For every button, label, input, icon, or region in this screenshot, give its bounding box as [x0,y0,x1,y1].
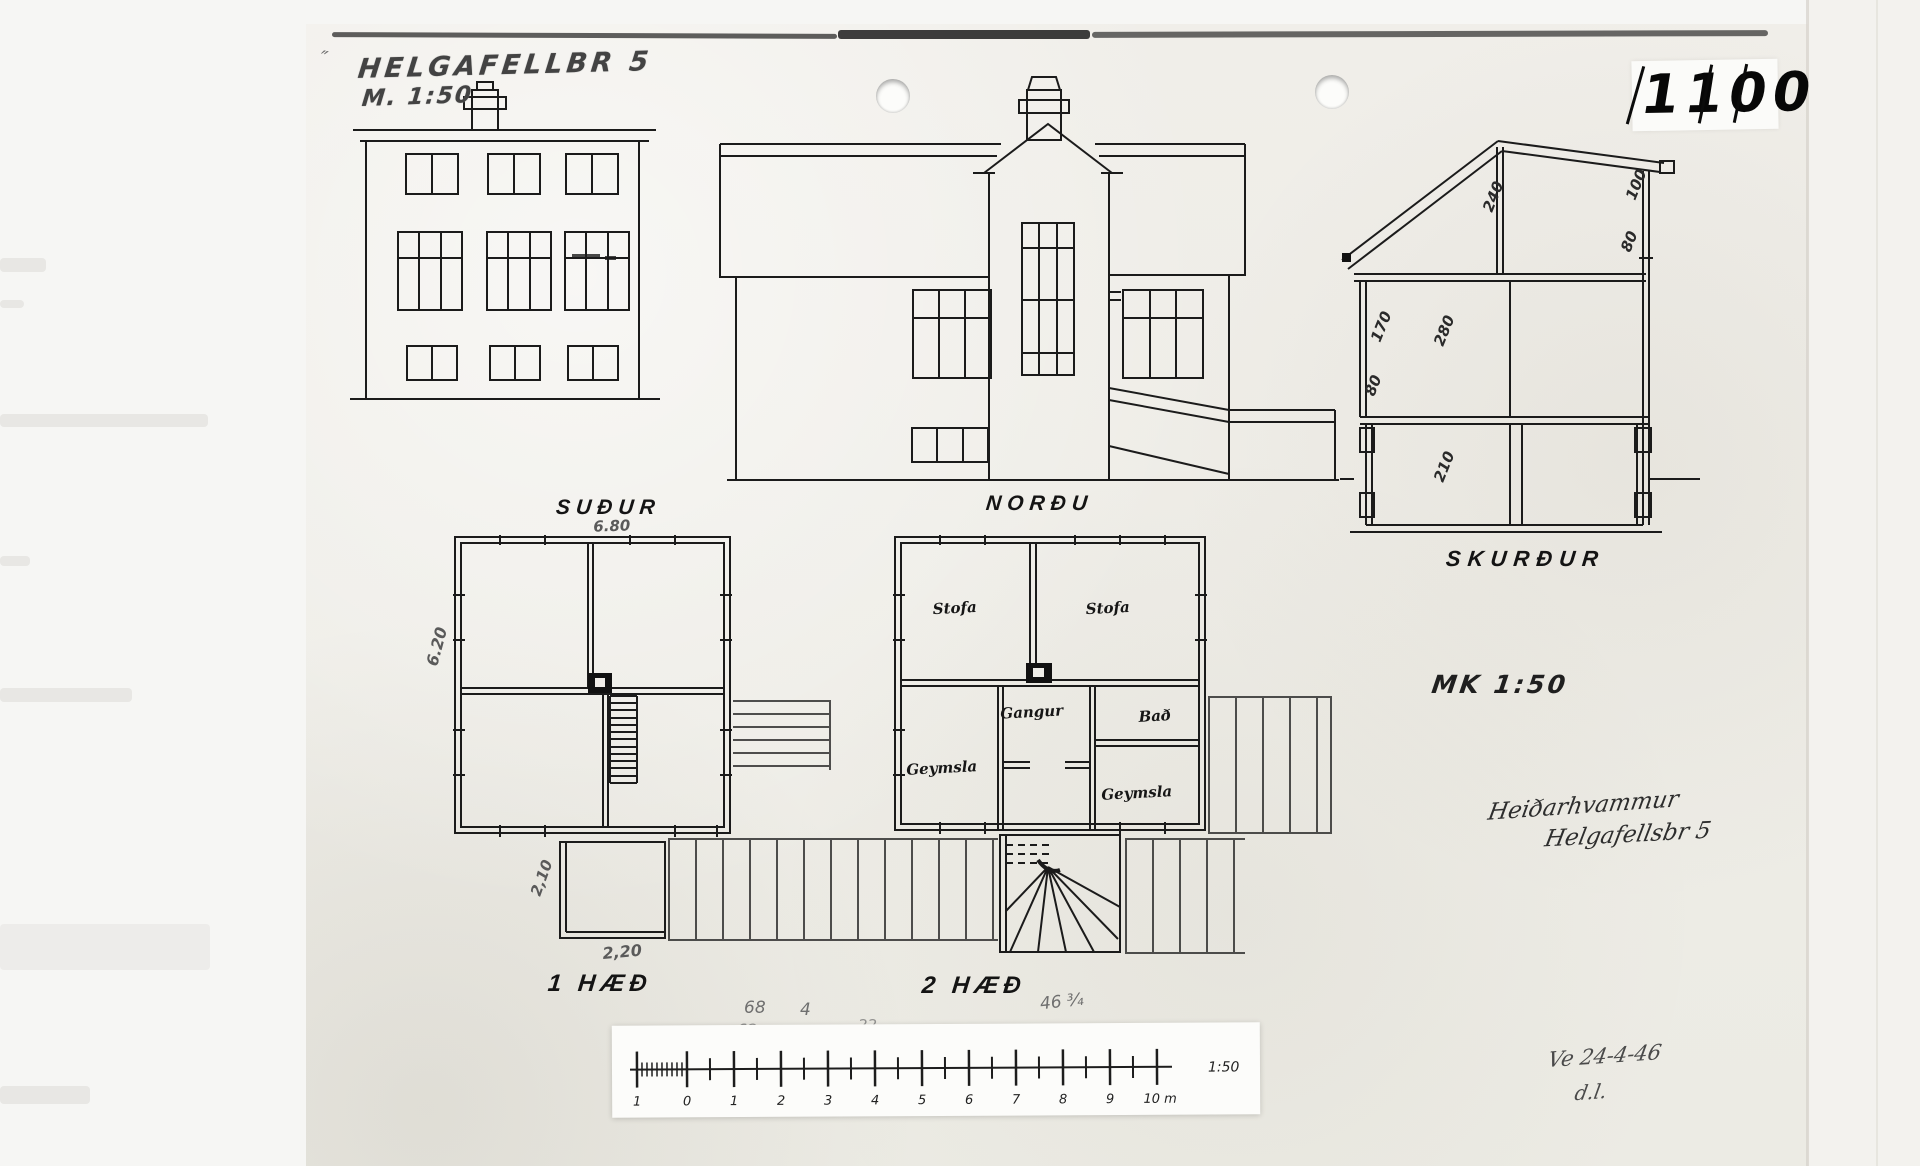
pencil-note: 4 [800,1000,811,1020]
interior-wall [603,694,608,827]
scale-tick-label: 2 [777,1094,785,1109]
south-elevation-drawing [350,80,660,410]
eave-detail [1342,253,1351,262]
scale-ratio-label: 1:50 [1208,1059,1240,1075]
interior-wall [588,543,593,688]
scan-streak [0,258,46,272]
dim-basement-height: 210 [1430,449,1458,485]
interior-wall [1030,543,1036,680]
scale-tick-label: 3 [824,1094,832,1109]
scanned-drawing-page: ″ HELGAFELLBR 5 M. 1:50 1100 [0,0,1920,1166]
dim-lower-left: 80 [1361,372,1386,398]
right-roof-mass [1109,156,1245,275]
roof-cornice [720,144,1245,156]
floor-slab [1360,417,1649,424]
room-label-stofa-right: Stofa [1085,598,1130,618]
chimney [1019,77,1069,140]
label-cross-section: SKURÐUR [1445,546,1607,572]
room-label-gangur: Gangur [1000,701,1065,722]
scan-streak [0,300,24,308]
scale-tick-label: 6 [965,1093,973,1108]
ink-smudge [572,256,616,258]
room-label-geymsla-right: Geymsla [1101,782,1173,804]
left-roof-mass [720,156,989,277]
dim-porch-width: 2,20 [602,941,643,963]
cross-section-drawing: 240 100 80 170 280 80 210 [1340,95,1700,545]
roof-cornice [353,130,656,141]
scan-streak [0,924,210,970]
scan-streak [0,556,30,566]
stamp-number: 1100 [1637,60,1821,126]
scale-tick-label: 1 [633,1095,641,1110]
basement-walls [1366,424,1637,525]
scale-tick-label: 8 [1059,1092,1067,1107]
scale-tick-label: 7 [1012,1093,1021,1108]
north-elevation-drawing [705,60,1345,500]
room-label-stofa-left: Stofa [932,598,977,618]
scanner-background-right [1808,0,1920,1166]
archive-number-stamp: 1100 [1631,59,1778,132]
handwritten-initials: d.l. [1573,1079,1609,1106]
dim-roof-right-top: 100 [1622,167,1650,203]
scale-tick-label: 9 [1106,1092,1114,1107]
scale-tick-label: 0 [683,1094,691,1109]
label-floor-plan-1: 1 HÆÐ [547,970,654,998]
scan-edge-shadow [838,30,1090,39]
exterior-steps [1109,388,1335,480]
dim-roof-right-low: 80 [1617,228,1642,254]
stair-window [1022,223,1074,375]
interior-wall [1095,740,1199,746]
scale-note: MK 1:50 [1430,670,1570,699]
sheet-edge [1806,0,1809,1166]
floor-plan-1-drawing: 6.80 6.20 2,10 2,20 [425,515,845,970]
label-floor-plan-2: 2 HÆÐ [921,972,1028,1000]
sheet-fold [1876,0,1878,1166]
dim-upper-left: 170 [1367,309,1395,345]
dim-upper-room-height: 280 [1430,313,1458,349]
room-label-geymsla-left: Geymsla [906,757,978,779]
tower-walls [989,173,1109,480]
dim-porch-depth: 2,10 [527,857,557,898]
pencil-note: 68 [744,998,766,1018]
scale-ruler: 1 0 1 2 3 4 5 6 7 8 9 10 m 1:50 [612,1022,1260,1117]
scan-streak [0,688,132,702]
scan-streak [0,414,208,427]
attic-post [1497,147,1503,274]
right-wall [1639,171,1653,525]
chimney-flue [1033,668,1044,677]
dim-plan1-depth: 6.20 [425,625,451,668]
label-north-elevation: NORÐU [985,492,1095,516]
chimney-flue [595,678,605,687]
interior-wall [1003,762,1090,768]
stair-flight [610,696,637,783]
scan-streak [0,1086,90,1104]
room-label-bad: Bað [1137,706,1171,726]
punch-hole [1315,75,1349,109]
entry-porch [560,842,665,938]
scale-ruler-strip: 1 0 1 2 3 4 5 6 7 8 9 10 m 1:50 [612,1022,1260,1117]
foundation-line [1350,525,1662,532]
tower-cap [973,124,1123,173]
title-scale-handwritten: M. 1:50 [361,82,475,112]
window-grid [398,154,629,380]
label-south-elevation: SUÐUR [555,496,662,520]
floor-plan-2-drawing: Stofa Stofa Gangur Bað Geymsla Geymsla [880,515,1350,975]
winder-stair [1000,835,1120,952]
punch-hole [876,79,910,113]
scale-tick-label: 4 [871,1093,879,1108]
attic-floor [1354,274,1646,281]
scale-tick-label: 10 m [1143,1092,1176,1107]
outer-wall-inner [901,543,1199,824]
scale-tick-label: 1 [730,1094,738,1109]
left-wall [1360,281,1366,417]
scale-tick-label: 5 [918,1093,926,1108]
